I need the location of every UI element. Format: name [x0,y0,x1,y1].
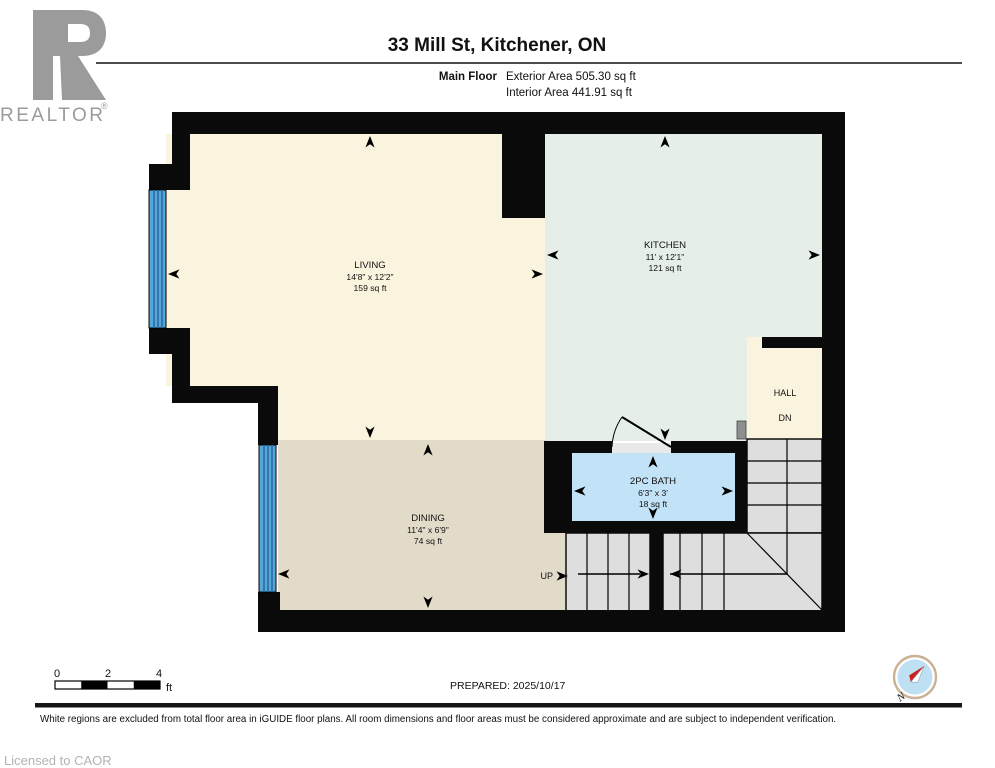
wall-segment [822,112,845,632]
stairs-dn-label: DN [779,413,792,423]
wall-segment [149,164,190,190]
wall-segment [258,610,845,632]
wall-segment [544,441,572,533]
stairs-down-run [747,439,822,533]
wall-segment [258,403,278,445]
wall-segment [650,527,663,612]
prepared-date: PREPARED: 2025/10/17 [450,680,566,692]
scale-bar-segment [134,681,160,689]
scale-tick-4: 4 [156,668,162,680]
bath-dimensions: 6'3" x 3' [638,488,668,498]
wall-segment [149,328,190,354]
wall-segment [172,354,190,390]
compass: N [894,656,936,705]
floor-label: Main Floor [439,71,498,83]
wall-segment [762,337,822,348]
floorplan-page: REALTOR ® 33 Mill St, Kitchener, ON Main… [0,0,995,768]
logo-word: REALTOR [0,105,106,126]
logo-r-bowl [53,10,106,56]
wall-segment [172,112,845,134]
scale-tick-0: 0 [54,668,60,680]
logo-r-stem [33,10,53,100]
logo-registered-icon: ® [101,101,108,111]
disclaimer-text: White regions are excluded from total fl… [40,714,836,725]
scale-bar: 0 2 4 ft [54,668,172,694]
dining-area: 74 sq ft [414,536,443,546]
dining-label: DINING [411,513,445,524]
footer-rule [35,703,962,708]
interior-area: Interior Area 441.91 sq ft [506,87,633,99]
exterior-area: Exterior Area 505.30 sq ft [506,71,637,83]
door-threshold [612,443,671,453]
kitchen-dimensions: 11' x 12'1" [646,252,685,262]
floorplan-graphic: REALTOR ® 33 Mill St, Kitchener, ON Main… [0,0,995,768]
stairs-up-right-run [663,533,822,612]
living-label: LIVING [354,260,385,271]
hall-label: HALL [774,388,797,398]
page-title: 33 Mill St, Kitchener, ON [388,35,607,56]
licensed-text: Licensed to CAOR [4,753,112,768]
scale-bar-segment [81,681,107,689]
wall-segment [502,133,545,218]
living-dimensions: 14'8" x 12'2" [346,272,393,282]
scale-tick-2: 2 [105,668,111,680]
kitchen-label: KITCHEN [644,240,686,251]
wall-segment [735,441,747,533]
scale-unit: ft [166,682,172,694]
living-area: 159 sq ft [354,283,388,293]
bath-area: 18 sq ft [639,499,668,509]
bath-label: 2PC BATH [630,476,676,487]
stairs-up-label: UP [540,571,553,581]
kitchen-area: 121 sq ft [649,263,683,273]
wall-segment [548,521,747,533]
dining-dimensions: 11'4" x 6'9" [407,525,449,535]
realtor-logo: REALTOR ® [0,10,108,126]
wall-segment [258,592,280,632]
hall-door-jamb [737,421,746,439]
wall-segment [172,386,278,403]
